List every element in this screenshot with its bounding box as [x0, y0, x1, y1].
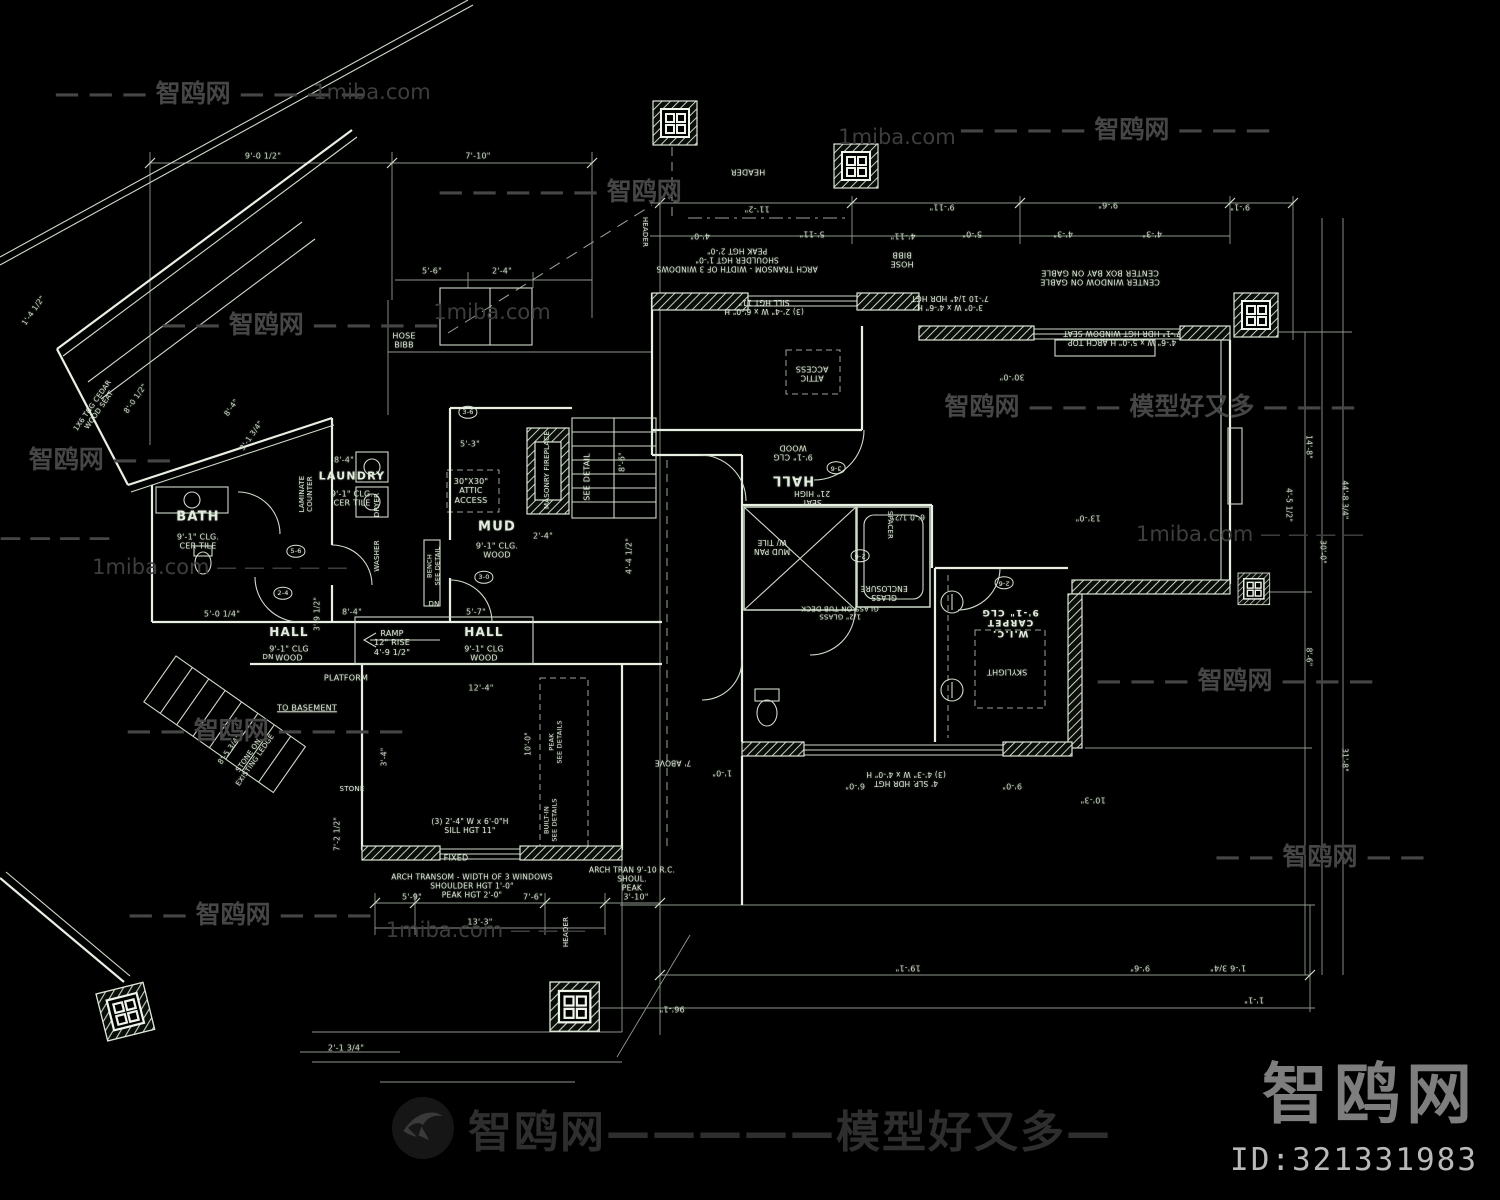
dimension-text: 4'-4 1/2": [624, 538, 633, 574]
dimension-lines: [150, 152, 1352, 1082]
plan-note: PEAK SEE DETAILS: [548, 720, 563, 763]
dimension-text: 7'-2 1/2": [334, 817, 343, 851]
plan-note: (3) 2'-4" W x 6'-0" H SILL HGT 11": [724, 297, 804, 315]
site-brand: 智鸥网 ID:321331983: [1230, 1062, 1478, 1178]
plan-note: 3'-0" W x 4'-6" H 7'-10 1/4" HDR HGT: [911, 293, 989, 311]
dimension-text: 10'-0": [525, 732, 534, 756]
dimension-text: 11'-2": [744, 204, 769, 213]
door-tag: 2-6: [850, 550, 869, 563]
dimension-text: 5'-3": [460, 439, 480, 448]
watermark-text: — — 智鸥网 — — — —: [161, 305, 438, 341]
plan-note: CENTER WINDOW ON GABLE CENTER BOX BAY ON…: [1040, 268, 1160, 287]
door-tag: 3-6: [458, 406, 477, 419]
dimension-text: 5'-0": [962, 229, 982, 238]
plan-note: STONE: [340, 785, 365, 793]
bird-logo-icon: [392, 1097, 454, 1159]
plan-note: 9'-1" CLG WOOD: [464, 645, 504, 664]
plan-note: HOSE BIBB: [890, 250, 913, 269]
dimension-text: 2'-4": [533, 531, 553, 540]
dimension-text: 3'-9 1/2": [314, 597, 323, 631]
plan-note: (3) 2'-4" W x 6'-0"H SILL HGT 11": [431, 818, 508, 836]
dimension-text: 4'-11": [890, 231, 915, 240]
watermark-text: 智鸥网 — — — 模型好又多 — — —: [945, 387, 1356, 423]
plan-note: WASHER: [373, 540, 381, 572]
plan-note: 4' SLP. HDR HGT (3) 4'-3" W x 4'-0" H: [866, 769, 946, 787]
plan-note: SEAT 21" HIGH: [794, 488, 830, 506]
plan-note: ARCH TRANSOM - WIDTH OF 3 WINDOWS SHOULD…: [656, 246, 818, 273]
watermark-text: — — — —: [0, 526, 110, 551]
plan-note: 9'-1" CLG WOOD: [269, 645, 309, 664]
dimension-text: 9'-6": [1130, 963, 1150, 972]
plan-note: DN: [428, 600, 439, 608]
watermark-text: 1miba.com — — — —: [1136, 522, 1364, 546]
dimension-text: 3'-4": [381, 748, 390, 767]
room-label: LAUNDRY: [319, 471, 386, 484]
watermark-text: 1miba.com — — —: [386, 918, 586, 942]
dimension-text: 8'-4": [334, 455, 354, 464]
plan-note: 9'-1" CLG WOOD: [773, 443, 813, 462]
dimension-text: 8'-4": [342, 607, 362, 616]
dimension-text: 1'-6 3/4": [1210, 963, 1246, 972]
plan-note: BUILT-IN SEE DETAILS: [543, 798, 558, 841]
dimension-text: 9'-0": [1002, 781, 1022, 790]
dimension-text: 7'-6": [523, 892, 543, 901]
dimension-text: 7'-10": [465, 151, 490, 160]
site-logo-text: 智鸥网: [1230, 1062, 1478, 1128]
dimension-text: 5'-11": [799, 229, 824, 238]
plan-note: HEADER: [641, 217, 649, 247]
dimension-text: 5'-6": [422, 266, 442, 275]
door-tag: 2-6: [994, 577, 1013, 590]
dimension-text: 4'-5 1/2": [1284, 488, 1293, 522]
plan-note: 1/2" GLASS GLASS ON TUB DECK: [801, 604, 878, 621]
plan-note: LAMINATE COUNTER: [298, 476, 315, 513]
plan-note: MASONRY FIREPLACE: [543, 431, 551, 509]
dimension-text: 9'-6": [1098, 200, 1118, 209]
watermark-text: — — 智鸥网 — —: [1215, 837, 1425, 873]
plan-note: ARCH TRAN 9'-10 R.C. SHOUL. PEAK: [589, 867, 675, 894]
door-tag: 2-4: [273, 587, 292, 600]
plan-note: RAMP 12" RISE 4'-9 1/2": [374, 629, 410, 657]
plan-note: MUD PAN W/ TILE: [754, 537, 790, 555]
plan-note: 30"X30" ATTIC ACCESS: [454, 477, 489, 505]
room-label: HALL: [464, 625, 503, 639]
footer-watermark: 智鸥网—————模型好又多—: [392, 1096, 1112, 1160]
plan-note: 9'-1" CLG. CER TILE: [331, 490, 373, 509]
dimension-text: 1'-1": [1244, 995, 1264, 1004]
dimension-text: 9'-0 1/2": [245, 151, 281, 160]
dimension-text: 3'-10": [623, 892, 648, 901]
image-id-text: ID:321331983: [1230, 1142, 1478, 1178]
watermark-text: 1miba.com: [838, 125, 955, 149]
room-label: HALL: [269, 625, 308, 639]
plan-note: DN: [262, 653, 273, 661]
dimension-text: 96'-1": [659, 1004, 684, 1013]
door-tag: 3-6: [826, 462, 845, 475]
watermark-text: 1miba.com — — — — —: [92, 555, 348, 579]
plan-note: 4'-6" W x 5'-0" H ARCH TOP 7'-1" HDR HGT…: [1063, 328, 1181, 346]
plan-note: SKYLIGHT: [987, 667, 1027, 676]
plan-note: ATTIC ACCESS: [796, 364, 829, 383]
dimension-text: 14'-8": [1304, 435, 1313, 459]
watermark-text: 智鸥网 — —: [29, 440, 171, 476]
room-label: HALL: [772, 472, 814, 487]
dimension-text: 5'-0 1/4": [204, 609, 240, 618]
dimension-text: 6'-0": [845, 781, 865, 790]
plan-note: HEADER: [731, 167, 766, 176]
plan-note: SEE DETAIL: [582, 453, 591, 501]
plan-note: 7' ABOVE: [655, 758, 692, 767]
watermark-text: — — — 智鸥网 — — —: [1096, 661, 1373, 697]
footer-watermark-text: 智鸥网—————模型好又多—: [468, 1096, 1112, 1160]
watermark-text: — — — — 智鸥网 — — —: [960, 110, 1271, 146]
dimension-text: 5'-7": [466, 607, 486, 616]
dimension-text: 12'-4": [468, 683, 493, 692]
dimension-text: 1'-0": [712, 768, 732, 777]
room-label: W.I.C. CARPET 9'-1" CLG: [981, 606, 1038, 638]
dimension-text: 10'-3": [1080, 795, 1105, 804]
plan-note: FIXED: [444, 853, 469, 862]
plan-note: PLATFORM: [324, 673, 368, 682]
plan-note: 9'-1" CLG. CER TILE: [177, 533, 219, 552]
dimension-text: 4'-0": [690, 231, 710, 240]
dimension-text: 44'-8 3/4": [1340, 481, 1349, 520]
door-tag: 3-0: [474, 571, 493, 584]
dimension-text: 5'-9": [402, 892, 422, 901]
dimension-text: 9'-11": [929, 202, 954, 211]
dimension-text: 30'-0": [999, 372, 1024, 381]
dimension-text: 19'-1": [895, 963, 920, 972]
room-label: BATH: [176, 509, 220, 524]
plan-note: GLASS ENCLOSURE: [860, 583, 907, 601]
watermark-text: — — 智鸥网 — — —: [128, 895, 372, 931]
dimension-text: 4'-3": [1142, 229, 1162, 238]
dimension-text: 9'-1": [1230, 202, 1250, 211]
room-label: MUD: [478, 519, 516, 534]
plan-note: DRYER: [373, 493, 381, 517]
dimension-text: 4'-3": [1053, 229, 1073, 238]
dimension-text: 2'-4": [492, 266, 512, 275]
plan-note: 9'-1" CLG. WOOD: [476, 542, 518, 561]
dimension-text: 8'-6": [617, 452, 626, 472]
watermark-text: — — — — — 智鸥网: [438, 172, 682, 208]
dimension-text: 31'-8": [1340, 748, 1349, 772]
watermark-text: 1miba.com: [313, 80, 430, 104]
blueprint-canvas: BATH9'-1" CLG. CER TILELAUNDRY9'-1" CLG.…: [0, 0, 1500, 1200]
dimension-text: 2'-1 3/4": [328, 1043, 364, 1052]
dimension-text: 13'-0": [1075, 513, 1100, 522]
dimension-text: 6'-0 1/2": [891, 512, 925, 521]
watermark-text: — — 智鸥网 — — — —: [126, 711, 403, 747]
floor-plan-linework: [0, 0, 1500, 1200]
watermark-text: 1miba.com: [433, 300, 550, 324]
plan-note: BENCH SEE DETAIL: [426, 547, 441, 586]
